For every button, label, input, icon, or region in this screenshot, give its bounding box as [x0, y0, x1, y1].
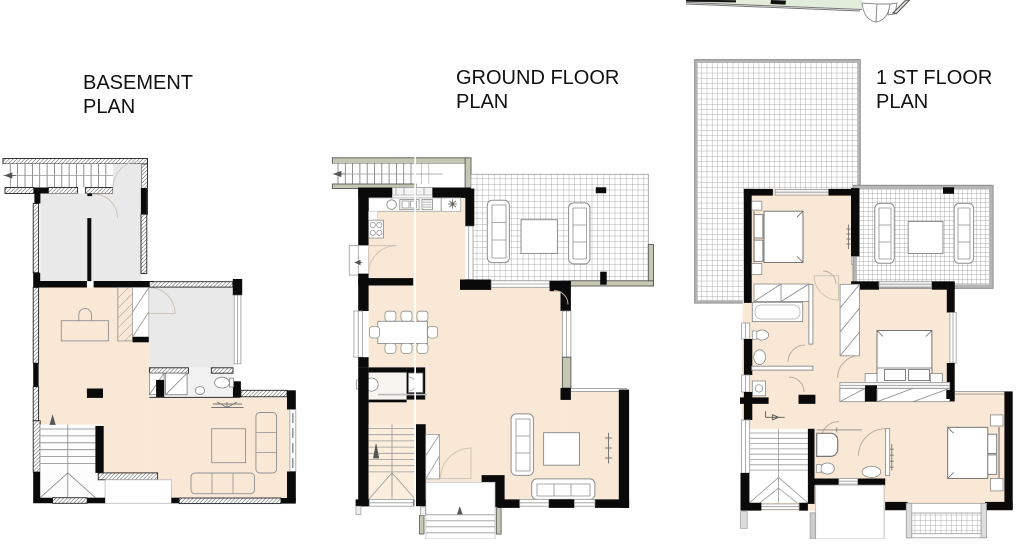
svg-text:GROUND FLOOR: GROUND FLOOR [456, 67, 619, 89]
svg-text:PLAN: PLAN [83, 96, 135, 118]
svg-text:PLAN: PLAN [456, 91, 508, 113]
svg-text:1 ST FLOOR: 1 ST FLOOR [876, 67, 992, 89]
svg-text:PLAN: PLAN [876, 91, 928, 113]
svg-text:BASEMENT: BASEMENT [83, 72, 193, 94]
